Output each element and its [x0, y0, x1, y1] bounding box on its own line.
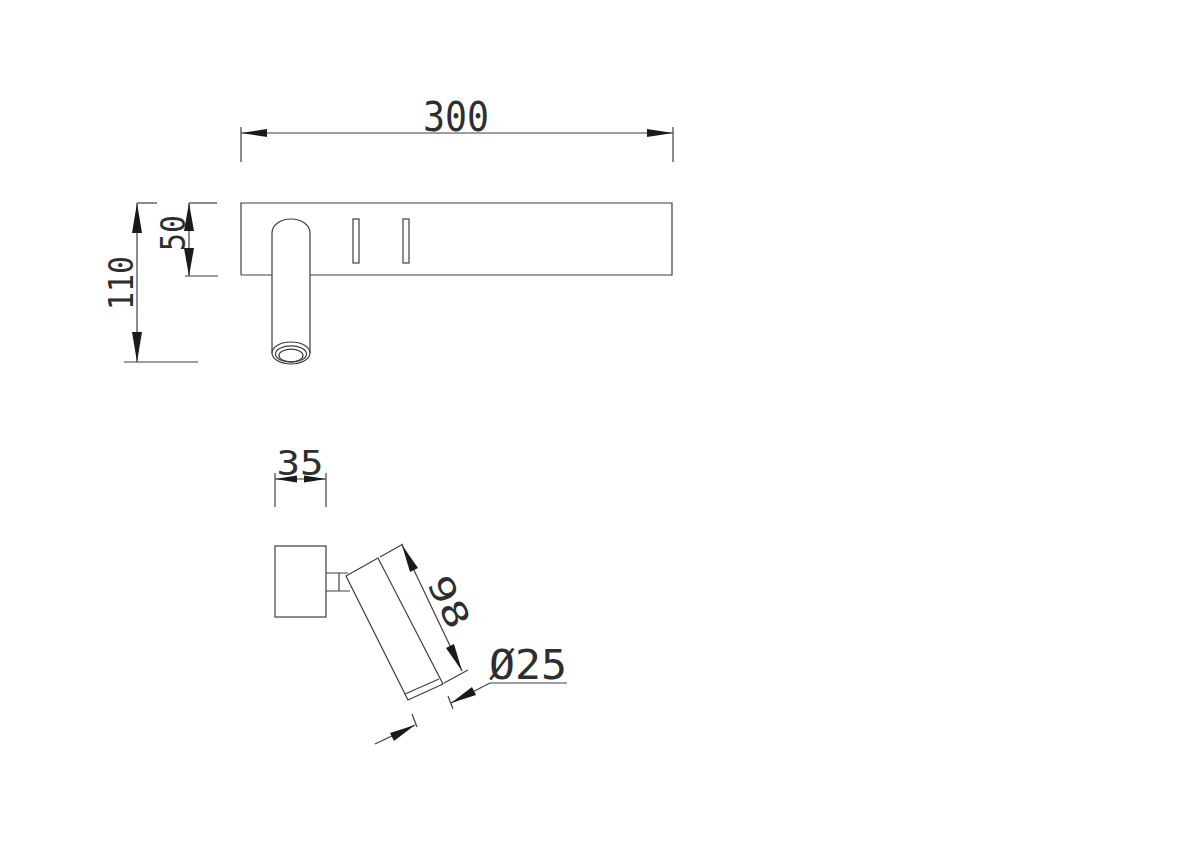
dimension-value-plate-height: 50 [153, 215, 193, 251]
arrowhead-down [184, 248, 194, 276]
mount-body [275, 546, 326, 617]
arrowhead-left [241, 129, 267, 137]
lens-inner-ring [279, 349, 303, 362]
slot-right [403, 219, 409, 263]
arrowhead-lower [390, 725, 415, 741]
arrowhead-upper [451, 687, 476, 703]
spotlight-head [346, 558, 443, 700]
arrowhead-up [132, 203, 142, 233]
barrel-outline [272, 219, 310, 353]
extension-line-top [380, 544, 403, 557]
drawing-sheet: 300 110 50 [0, 0, 1200, 848]
dimension-barrel-length: 98 [380, 544, 479, 683]
dimension-value-barrel-length: 98 [419, 569, 479, 635]
slot-left [353, 219, 359, 263]
dimension-value-plate-depth: 35 [277, 443, 324, 483]
side-view: 35 98 Ø25 [275, 443, 567, 744]
dimension-plate-height: 50 [153, 203, 218, 276]
arrowhead-down [132, 332, 142, 362]
arrowhead-bottom [446, 644, 462, 671]
extension-line-bottom [444, 670, 468, 683]
dimension-value-overall-height: 110 [101, 256, 141, 310]
head-rim-line [405, 679, 439, 694]
technical-drawing-canvas: 300 110 50 [0, 0, 1200, 848]
lens-middle-ring [276, 346, 307, 362]
dimension-value-plate-width: 300 [423, 94, 489, 140]
arrowhead-right [647, 129, 673, 137]
arrowhead-top [402, 545, 418, 572]
front-view: 300 110 50 [101, 94, 673, 364]
dimension-plate-width: 300 [241, 94, 673, 162]
dimension-barrel-diameter: Ø25 [375, 642, 567, 744]
backplate-outline [241, 203, 672, 275]
dimension-value-barrel-diameter: Ø25 [489, 642, 567, 688]
dimension-plate-depth: 35 [275, 443, 326, 507]
